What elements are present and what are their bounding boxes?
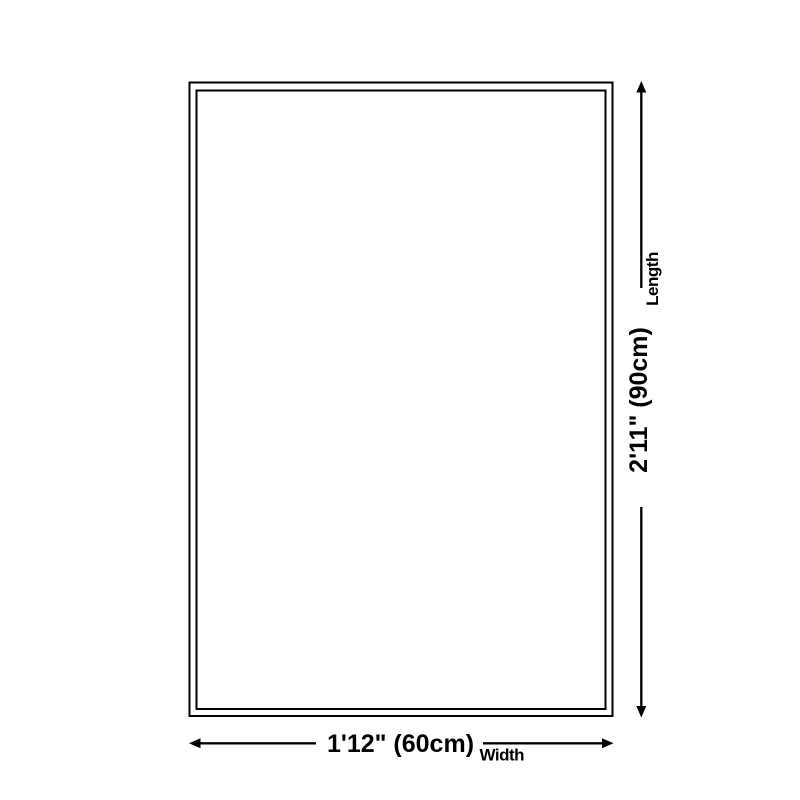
svg-text:Width: Width [480, 746, 525, 765]
svg-text:1'12" (60cm): 1'12" (60cm) [327, 730, 474, 758]
svg-text:2'11" (90cm): 2'11" (90cm) [625, 327, 653, 473]
svg-text:Length: Length [643, 252, 662, 306]
